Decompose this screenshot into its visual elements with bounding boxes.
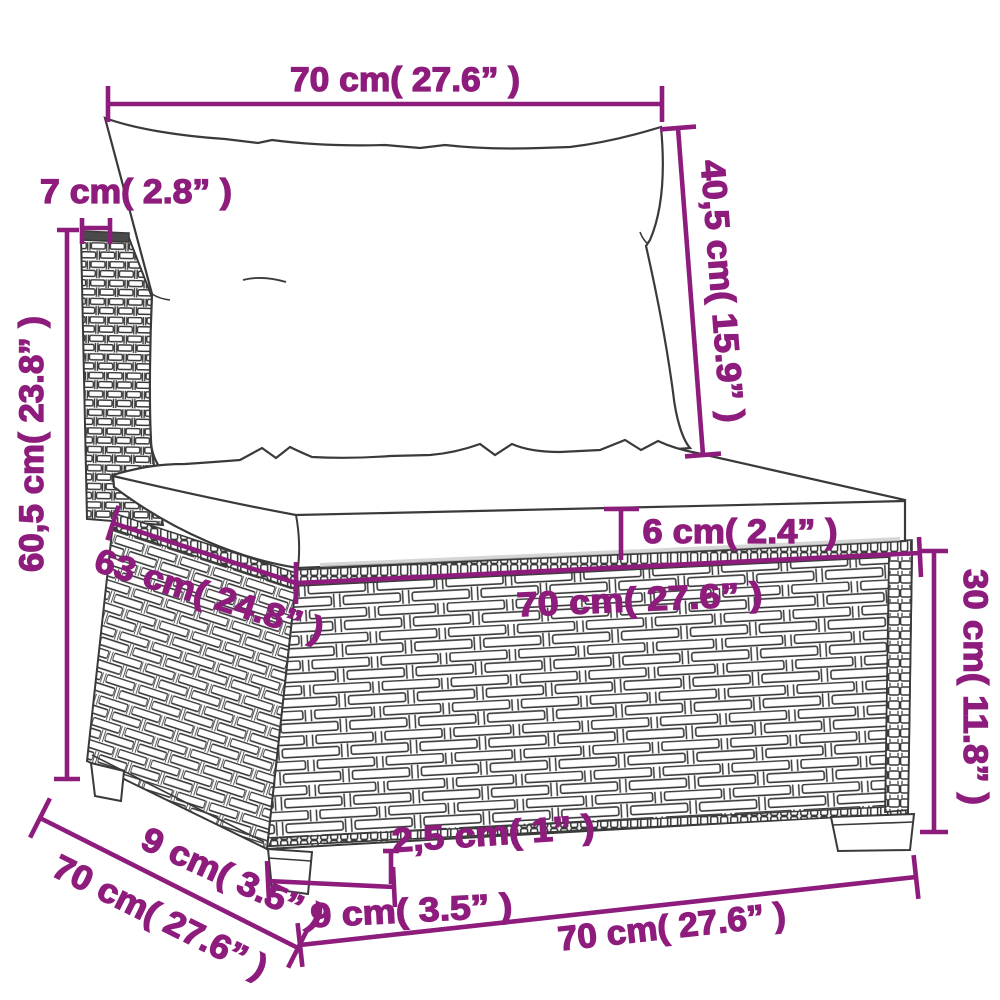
- svg-text:70 cm( 27.6” ): 70 cm( 27.6” ): [290, 61, 520, 99]
- svg-text:30 cm( 11.8” ): 30 cm( 11.8” ): [956, 569, 994, 805]
- svg-text:7 cm( 2.8” ): 7 cm( 2.8” ): [40, 173, 232, 211]
- svg-text:6 cm( 2.4” ): 6 cm( 2.4” ): [643, 513, 838, 551]
- svg-text:60,5 cm( 23.8” ): 60,5 cm( 23.8” ): [13, 316, 51, 572]
